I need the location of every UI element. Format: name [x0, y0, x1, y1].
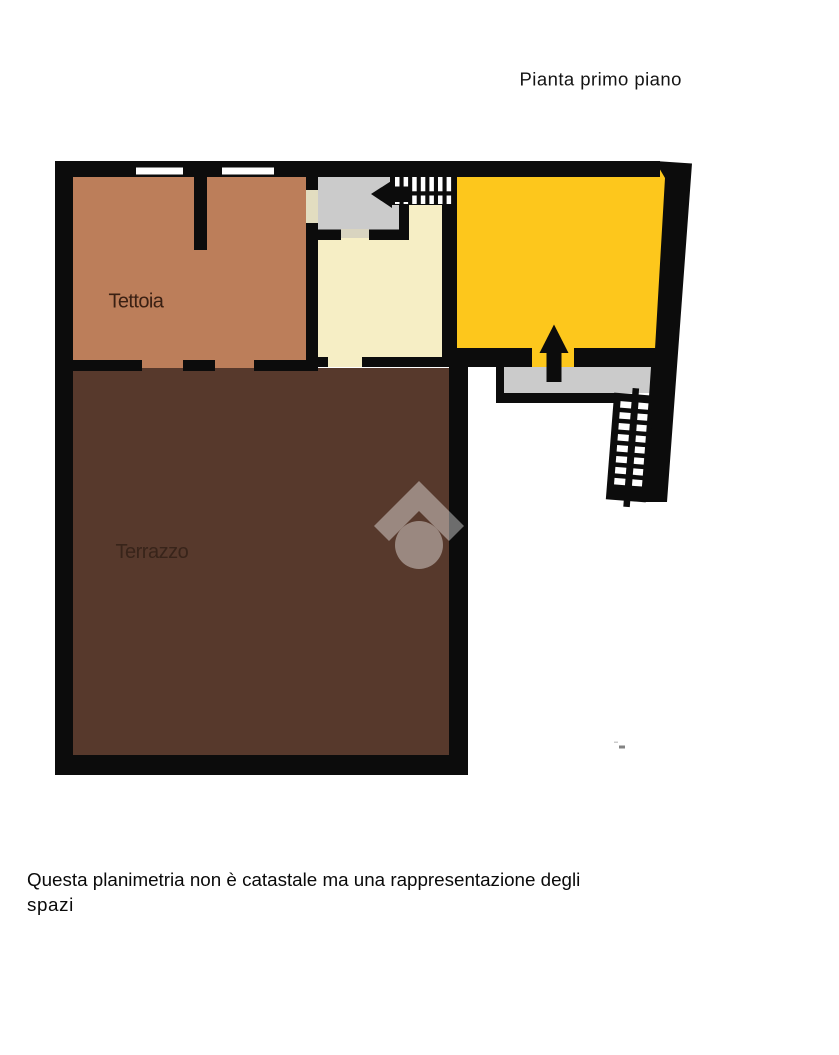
- svg-text:Tettoia: Tettoia: [109, 291, 165, 313]
- svg-text:spazi: spazi: [27, 894, 74, 915]
- svg-text:Pianta primo piano: Pianta primo piano: [520, 69, 682, 90]
- svg-text:Terrazzo: Terrazzo: [116, 541, 189, 563]
- svg-text:Questa planimetria non è catas: Questa planimetria non è catastale ma un…: [27, 869, 580, 890]
